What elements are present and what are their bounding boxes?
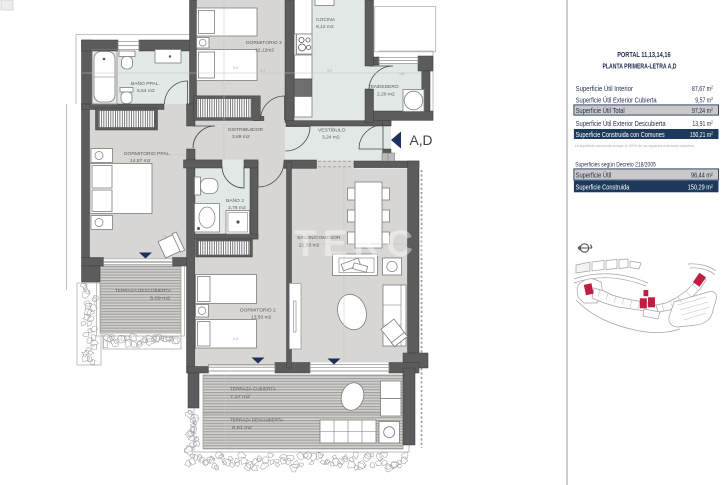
svg-text:Superficie Útil Exterior Descu: Superficie Útil Exterior Descubierta bbox=[576, 119, 666, 128]
svg-text:3,0: 3,0 bbox=[233, 66, 238, 70]
svg-text:2,20 m2: 2,20 m2 bbox=[377, 92, 395, 98]
svg-text:13,91 m2: 13,91 m2 bbox=[692, 119, 713, 128]
svg-text:PLANTA PRIMERA-LETRA A,D: PLANTA PRIMERA-LETRA A,D bbox=[603, 61, 677, 70]
svg-text:4,2: 4,2 bbox=[163, 235, 167, 240]
svg-text:TERRAZA DESCUBIERTA: TERRAZA DESCUBIERTA bbox=[230, 418, 284, 424]
svg-text:97,24 m2: 97,24 m2 bbox=[692, 106, 713, 115]
svg-text:87,67 m2: 87,67 m2 bbox=[692, 84, 713, 93]
svg-text:Superficies según Decreto 218/: Superficies según Decreto 218/2005 bbox=[575, 162, 656, 168]
svg-text:1,6: 1,6 bbox=[399, 72, 404, 76]
svg-text:8,12 m2: 8,12 m2 bbox=[316, 24, 334, 30]
svg-text:5,09 m2: 5,09 m2 bbox=[150, 296, 170, 302]
svg-text:BAÑO 2: BAÑO 2 bbox=[226, 197, 244, 204]
svg-text:3,69 m2: 3,69 m2 bbox=[232, 134, 250, 140]
svg-text:3,76 m2: 3,76 m2 bbox=[228, 205, 246, 211]
svg-text:DORMITORIO PPAL.: DORMITORIO PPAL. bbox=[124, 151, 171, 157]
svg-text:96,44 m2: 96,44 m2 bbox=[691, 171, 713, 180]
svg-text:DORMITORIO 3: DORMITORIO 3 bbox=[246, 40, 282, 46]
svg-text:Superficie Útil Exterior Cubie: Superficie Útil Exterior Cubierta bbox=[576, 95, 657, 104]
svg-text:BAÑO PPAL.: BAÑO PPAL. bbox=[131, 80, 160, 87]
svg-text:3,1: 3,1 bbox=[260, 69, 265, 73]
svg-text:DORMITORIO 2: DORMITORIO 2 bbox=[240, 308, 276, 314]
svg-text:VESTÍBULO: VESTÍBULO bbox=[318, 127, 346, 134]
svg-text:150,29 m2: 150,29 m2 bbox=[688, 183, 714, 192]
svg-text:7,37 m2: 7,37 m2 bbox=[230, 394, 250, 400]
svg-text:Superficie Construida con Comu: Superficie Construida con Comunes bbox=[576, 130, 665, 139]
svg-text:PORTAL 11,13,14,16: PORTAL 11,13,14,16 bbox=[617, 50, 670, 59]
svg-text:2,2: 2,2 bbox=[327, 69, 332, 73]
svg-text:12,12m2: 12,12m2 bbox=[255, 48, 274, 54]
svg-text:Superficie Útil Interior: Superficie Útil Interior bbox=[576, 84, 634, 93]
svg-text:TENDEDERO: TENDEDERO bbox=[368, 84, 399, 90]
svg-text:5,54 m2: 5,54 m2 bbox=[137, 88, 155, 94]
svg-text:A,D: A,D bbox=[410, 133, 433, 148]
svg-text:14,57 m2: 14,57 m2 bbox=[130, 158, 151, 164]
svg-text:3,24 m2: 3,24 m2 bbox=[322, 135, 340, 141]
svg-text:DISTRIBUIDOR: DISTRIBUIDOR bbox=[228, 127, 264, 133]
svg-text:9,57 m2: 9,57 m2 bbox=[695, 95, 713, 104]
svg-text:2,9: 2,9 bbox=[233, 337, 238, 341]
svg-text:La superficie construida inclu: La superficie construida incluye el 100%… bbox=[575, 144, 695, 148]
svg-text:Superficie Útil: Superficie Útil bbox=[576, 171, 612, 180]
svg-text:13,50 m2: 13,50 m2 bbox=[251, 315, 272, 321]
svg-text:8,91 m2: 8,91 m2 bbox=[232, 425, 252, 431]
svg-text:TEKCE: TEKCE bbox=[294, 223, 449, 264]
svg-text:COCINA: COCINA bbox=[316, 17, 336, 23]
svg-text:Superficie Útil Total: Superficie Útil Total bbox=[576, 106, 625, 115]
svg-text:TERRAZA CUBIERTA: TERRAZA CUBIERTA bbox=[230, 387, 277, 393]
svg-text:Superficie Construida: Superficie Construida bbox=[576, 183, 630, 192]
svg-text:150,21 m2: 150,21 m2 bbox=[690, 130, 713, 139]
svg-text:TERRAZA DESCUBIERTA: TERRAZA DESCUBIERTA bbox=[115, 288, 172, 294]
